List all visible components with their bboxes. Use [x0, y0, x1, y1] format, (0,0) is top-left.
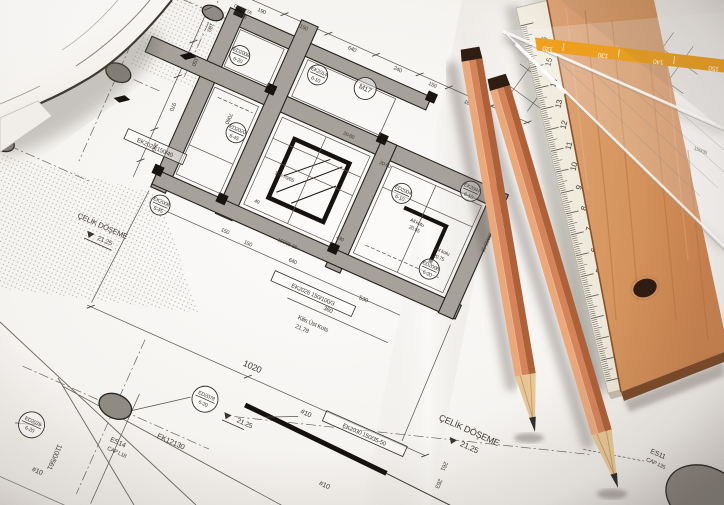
photo-blueprint-scene: EK2026 150/100/3EK2030 150/35-50EK2023 1…: [0, 0, 724, 505]
blueprint-photo-svg: EK2026 150/100/3EK2030 150/35-50EK2023 1…: [0, 0, 724, 505]
svg-text:130: 130: [597, 51, 609, 59]
svg-text:140: 140: [652, 57, 664, 65]
svg-text:120: 120: [542, 44, 554, 52]
svg-text:150: 150: [708, 64, 720, 72]
